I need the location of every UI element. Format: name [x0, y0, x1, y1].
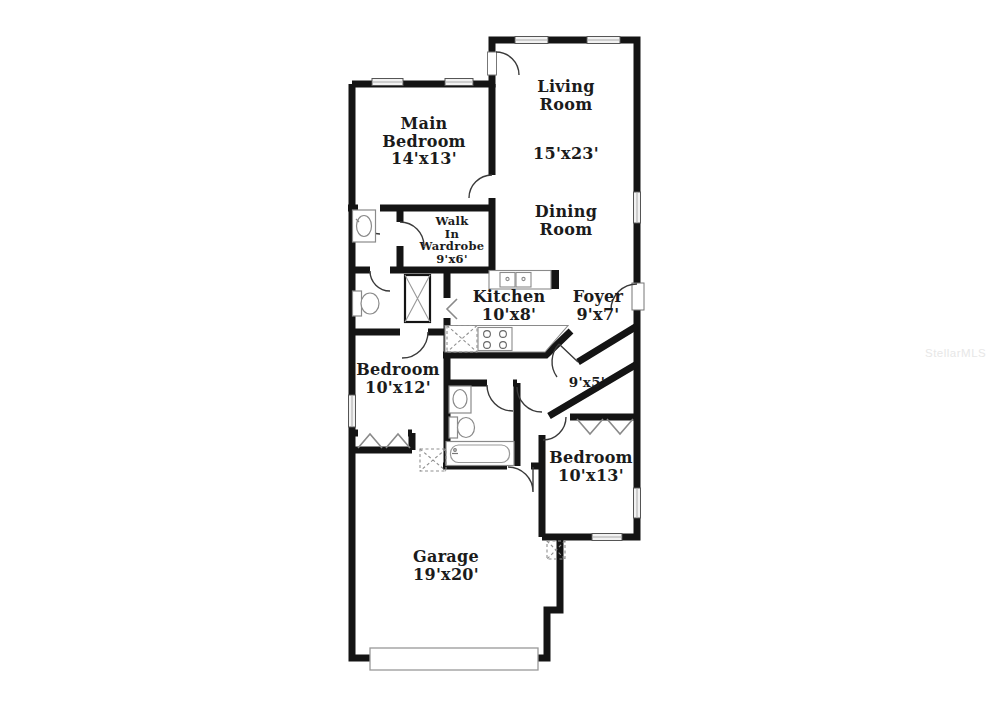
- main-bedroom-window-1: [372, 79, 403, 86]
- patio-door-arc: [496, 52, 519, 75]
- living-room-window-2: [587, 37, 620, 44]
- label-walk-in-wardrobe: Walk In Wardrobe 9'x6': [420, 215, 485, 266]
- label-garage: Garage 19'x20': [413, 548, 479, 583]
- label-living-room: Living Room: [537, 78, 594, 113]
- front-door-leaf: [632, 283, 644, 310]
- bedroom-10x13-rear-window: [592, 534, 622, 541]
- hall-bath-bathtub: [446, 442, 514, 466]
- bedroom-10x13-side-window: [634, 488, 641, 518]
- bedroom-10x13-closet-doors: [577, 419, 633, 434]
- main-bath-sink: [353, 210, 376, 242]
- kitchen-sink-counter: [489, 271, 551, 290]
- label-main-bedroom: Main Bedroom 14'x13': [382, 115, 466, 168]
- patio-door-leaf: [488, 52, 497, 75]
- floorplan-drawing: [0, 0, 991, 720]
- main-bath-toilet: [353, 291, 380, 316]
- hall-bath-sink: [449, 386, 471, 413]
- label-bedroom-10x12: Bedroom 10'x12': [356, 361, 440, 396]
- toilet-room-door-arc: [370, 271, 390, 291]
- bedroom-10x12-window: [349, 395, 356, 427]
- kitchen-counter-end-wall: [551, 270, 559, 289]
- floorplan-page: Main Bedroom 14'x13' Living Room 15'x23'…: [0, 0, 991, 720]
- garage-door: [370, 648, 538, 670]
- watermark: StellarMLS: [925, 347, 986, 359]
- label-hall-9x5: 9'x5': [569, 375, 606, 390]
- hall-corridor-door-arc: [517, 387, 542, 412]
- label-bedroom-10x13: Bedroom 10'x13': [549, 449, 633, 484]
- living-room-window-1: [515, 37, 548, 44]
- hall-bath-door-arc: [487, 385, 513, 411]
- bedroom-10x13-door-arc: [543, 417, 566, 440]
- bedroom-10x12-door-arc: [402, 332, 428, 358]
- label-foyer: Foyer 9'x7': [573, 288, 624, 323]
- hall-bath-toilet: [449, 417, 475, 438]
- bedroom-10x12-closet-doors: [358, 434, 410, 448]
- label-dining-room: Dining Room: [535, 203, 597, 238]
- garage-entry-door-arc: [508, 467, 533, 492]
- main-bath-shower: [405, 275, 430, 322]
- label-living-room-dims: 15'x23': [533, 145, 599, 163]
- label-kitchen: Kitchen 10'x8': [473, 288, 546, 323]
- dining-room-window: [634, 192, 641, 223]
- laundry-closet: [420, 449, 446, 471]
- foyer-hall-door-arc: [552, 344, 578, 377]
- main-bedroom-window-2: [445, 79, 473, 86]
